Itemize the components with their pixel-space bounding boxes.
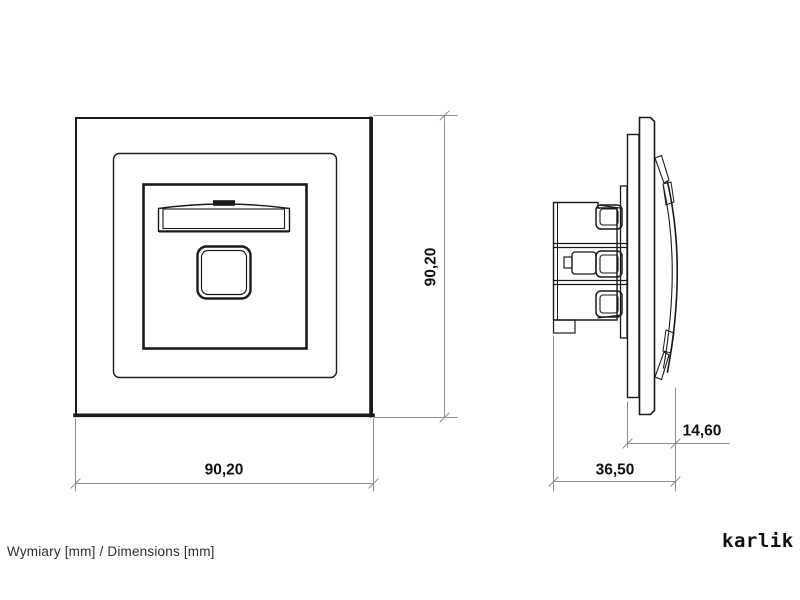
front-plate-outline [75, 118, 373, 416]
dimensions-note: Wymiary [mm] / Dimensions [mm] [7, 544, 215, 559]
drawing-svg: 90,20 90,20 14,60 36,50 [0, 0, 800, 600]
front-view [75, 118, 373, 416]
technical-drawing-canvas: 90,20 90,20 14,60 36,50 Wymiary [mm] / D… [0, 0, 800, 600]
side-inner-plate [628, 135, 640, 398]
front-label-window [159, 200, 290, 231]
side-front-cover [655, 156, 677, 380]
karlik-logo: karlik [722, 530, 794, 552]
dim-label-side-depth: 36,50 [596, 462, 635, 479]
dim-label-side-protrusion: 14,60 [683, 423, 722, 440]
side-mounting-claws [596, 205, 622, 318]
front-frame-opening [114, 154, 337, 378]
side-screw-nub [572, 252, 596, 274]
side-view [554, 118, 678, 415]
side-screw-head [564, 257, 572, 268]
side-frame-plate [640, 118, 655, 415]
dim-label-front-height: 90,20 [423, 248, 440, 287]
dim-front-width-lines [71, 419, 378, 491]
dim-label-front-width: 90,20 [205, 462, 244, 479]
front-label-notch [213, 200, 235, 206]
front-rj45-opening [198, 247, 251, 299]
dimension-annotations: 90,20 90,20 14,60 36,50 [71, 111, 729, 491]
dim-front-height-lines [374, 111, 457, 422]
